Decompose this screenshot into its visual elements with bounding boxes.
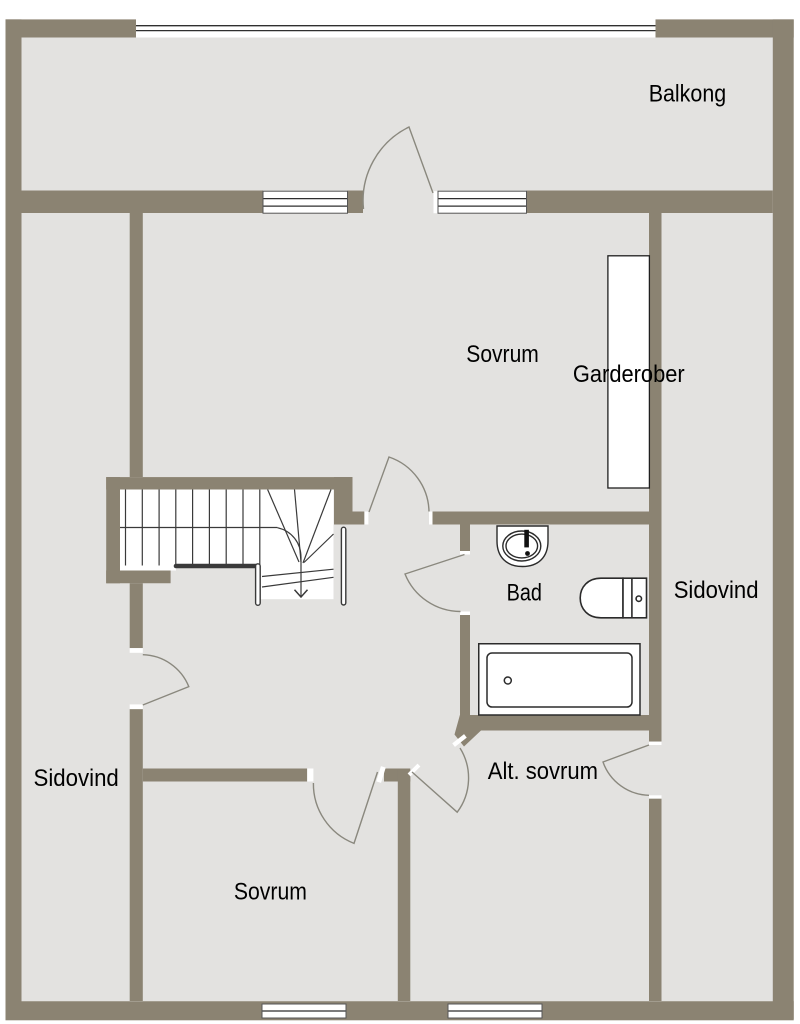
svg-text:Balkong: Balkong [649,81,727,108]
svg-text:Garderober: Garderober [573,361,685,388]
svg-text:Sovrum: Sovrum [466,341,539,368]
svg-text:Bad: Bad [507,580,542,607]
svg-text:Sovrum: Sovrum [234,879,307,906]
svg-text:Alt. sovrum: Alt. sovrum [488,758,598,785]
svg-text:Sidovind: Sidovind [34,765,119,792]
svg-text:Sidovind: Sidovind [674,577,759,604]
